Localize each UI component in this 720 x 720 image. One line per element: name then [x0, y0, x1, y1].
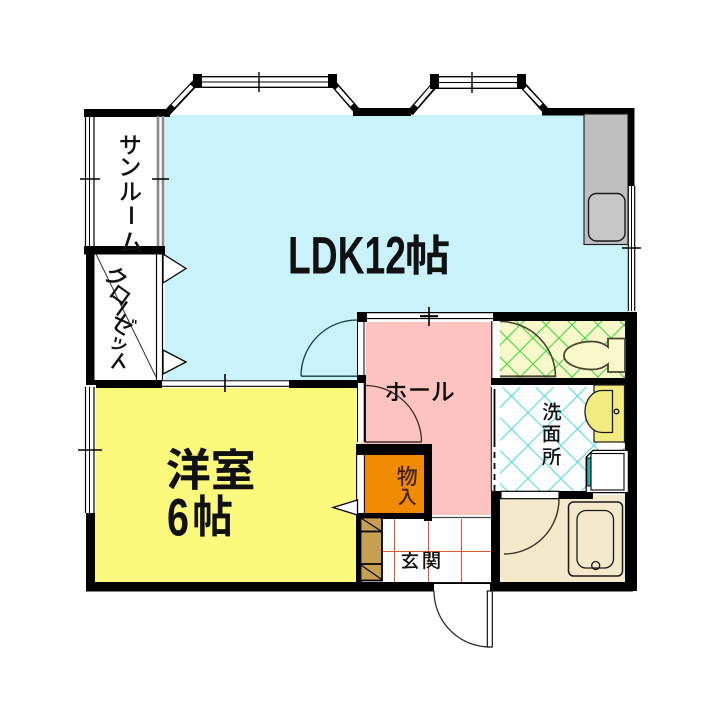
svg-text:6: 6	[167, 489, 189, 548]
svg-text:LDK12: LDK12	[288, 227, 406, 286]
